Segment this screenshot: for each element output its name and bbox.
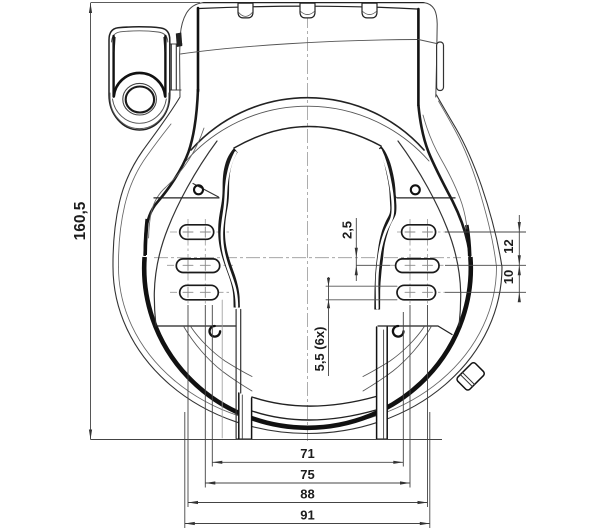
svg-text:71: 71 [300,446,314,461]
svg-text:75: 75 [300,467,314,482]
svg-text:160,5: 160,5 [72,201,89,240]
svg-text:10: 10 [501,270,516,284]
svg-text:5,5 (6x): 5,5 (6x) [312,327,327,372]
svg-text:91: 91 [300,508,314,523]
svg-text:88: 88 [300,487,314,502]
svg-text:12: 12 [501,239,516,253]
svg-text:2,5: 2,5 [340,221,355,239]
